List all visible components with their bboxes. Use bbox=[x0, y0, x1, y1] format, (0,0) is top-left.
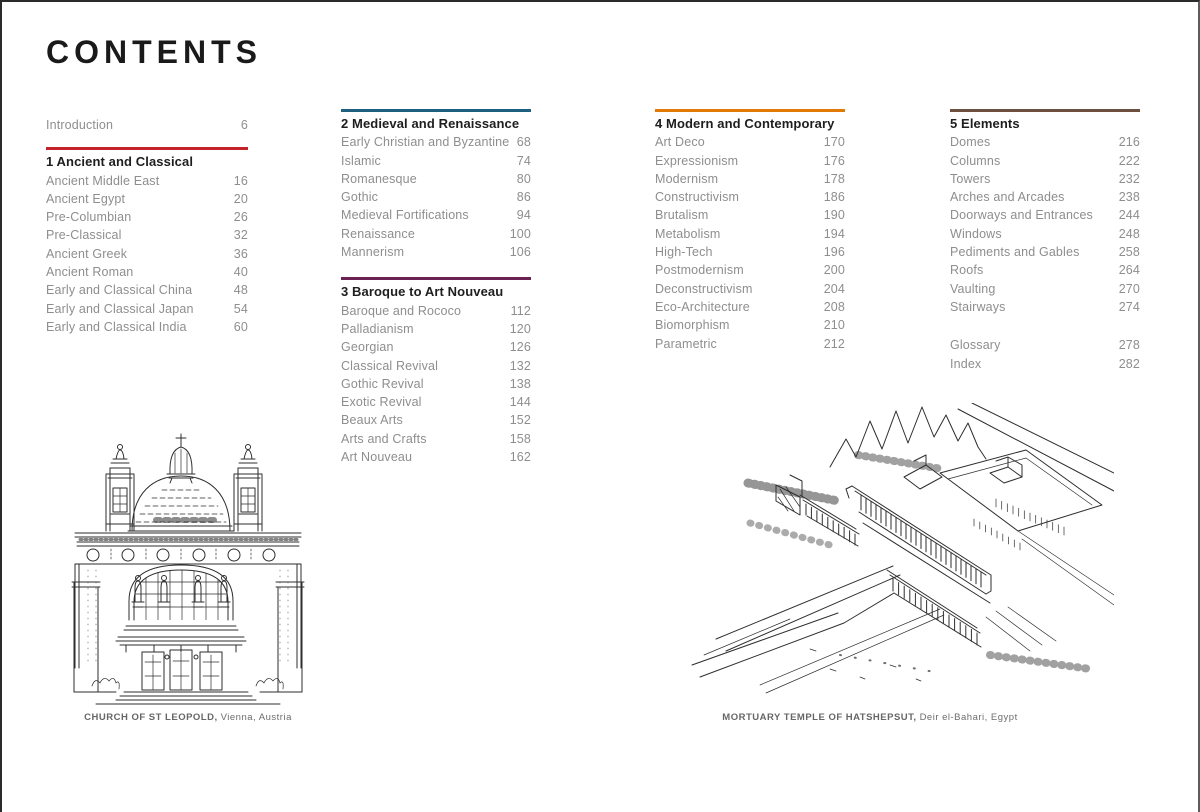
toc-entry-label: Modernism bbox=[655, 170, 718, 188]
toc-section: 4 Modern and ContemporaryArt Deco170Expr… bbox=[655, 109, 845, 353]
toc-column-3: 4 Modern and ContemporaryArt Deco170Expr… bbox=[655, 109, 845, 353]
toc-entry-label: Medieval Fortifications bbox=[341, 206, 469, 224]
toc-entry-page-number: 112 bbox=[511, 302, 531, 320]
toc-entry: Ancient Roman40 bbox=[46, 263, 248, 281]
toc-entry: Arches and Arcades238 bbox=[950, 188, 1140, 206]
toc-entry-label: Glossary bbox=[950, 336, 1001, 354]
temple-caption-location: Deir el-Bahari, Egypt bbox=[920, 712, 1018, 723]
toc-section: 2 Medieval and RenaissanceEarly Christia… bbox=[341, 109, 531, 261]
toc-entry-page-number: 232 bbox=[1119, 170, 1140, 188]
toc-entry-label: Parametric bbox=[655, 335, 717, 353]
toc-entry-page-number: 144 bbox=[510, 393, 531, 411]
toc-entry-page-number: 158 bbox=[510, 430, 531, 448]
toc-entry-page-number: 186 bbox=[824, 188, 845, 206]
toc-entry: Early and Classical China48 bbox=[46, 281, 248, 299]
toc-entry: Islamic74 bbox=[341, 152, 531, 170]
toc-entry-page-number: 20 bbox=[234, 190, 248, 208]
toc-entry-label: Ancient Roman bbox=[46, 263, 133, 281]
toc-entry: Art Deco170 bbox=[655, 133, 845, 151]
toc-entry: Art Nouveau162 bbox=[341, 448, 531, 466]
toc-entry-page-number: 190 bbox=[824, 206, 845, 224]
toc-entry: Medieval Fortifications94 bbox=[341, 206, 531, 224]
toc-entry: Postmodernism200 bbox=[655, 261, 845, 279]
toc-entry: Parametric212 bbox=[655, 335, 845, 353]
church-caption-location: Vienna, Austria bbox=[221, 712, 292, 723]
toc-entry-label: Ancient Egypt bbox=[46, 190, 125, 208]
toc-entry-page-number: 248 bbox=[1119, 225, 1140, 243]
toc-entry-page-number: 94 bbox=[517, 206, 531, 224]
toc-entry-label: Exotic Revival bbox=[341, 393, 422, 411]
toc-entry-label: Early and Classical China bbox=[46, 281, 192, 299]
toc-entry-page-number: 6 bbox=[241, 116, 248, 134]
toc-entry-page-number: 274 bbox=[1119, 298, 1140, 316]
toc-entry: Ancient Egypt20 bbox=[46, 190, 248, 208]
section-title: 2 Medieval and Renaissance bbox=[341, 115, 531, 133]
church-caption-title: CHURCH OF ST LEOPOLD, bbox=[84, 712, 217, 723]
toc-entry: Early and Classical Japan54 bbox=[46, 300, 248, 318]
toc-entry-label: Stairways bbox=[950, 298, 1006, 316]
toc-entry: Gothic Revival138 bbox=[341, 375, 531, 393]
toc-entry-label: Metabolism bbox=[655, 225, 720, 243]
toc-entry-label: Renaissance bbox=[341, 225, 415, 243]
toc-entry-backmatter: Glossary278 bbox=[950, 336, 1140, 354]
toc-entry: Deconstructivism204 bbox=[655, 280, 845, 298]
section-rule bbox=[341, 109, 531, 112]
toc-entry-page-number: 68 bbox=[517, 133, 531, 151]
toc-entry: Beaux Arts152 bbox=[341, 411, 531, 429]
toc-entry-page-number: 176 bbox=[824, 152, 845, 170]
toc-entry-label: Introduction bbox=[46, 116, 113, 134]
toc-entry: Palladianism120 bbox=[341, 320, 531, 338]
toc-entry-page-number: 270 bbox=[1119, 280, 1140, 298]
toc-entry-label: Classical Revival bbox=[341, 357, 438, 375]
toc-entry: Stairways274 bbox=[950, 298, 1140, 316]
toc-entry: Eco-Architecture208 bbox=[655, 298, 845, 316]
toc-entry-label: Domes bbox=[950, 133, 990, 151]
toc-entry-label: Pediments and Gables bbox=[950, 243, 1079, 261]
toc-entry-label: Baroque and Rococo bbox=[341, 302, 461, 320]
toc-entry-page-number: 16 bbox=[234, 172, 248, 190]
toc-entry-label: Postmodernism bbox=[655, 261, 744, 279]
section-rule bbox=[46, 147, 248, 150]
church-caption: CHURCH OF ST LEOPOLD,Vienna, Austria bbox=[18, 712, 358, 723]
toc-entry: Domes216 bbox=[950, 133, 1140, 151]
toc-entry-label: Eco-Architecture bbox=[655, 298, 750, 316]
toc-entry: Renaissance100 bbox=[341, 225, 531, 243]
toc-section: 1 Ancient and ClassicalAncient Middle Ea… bbox=[46, 147, 248, 336]
toc-entry-page-number: 222 bbox=[1119, 152, 1140, 170]
toc-entry-page-number: 282 bbox=[1119, 355, 1140, 373]
toc-entry-page-number: 238 bbox=[1119, 188, 1140, 206]
toc-entry-label: Brutalism bbox=[655, 206, 708, 224]
toc-entry: Pediments and Gables258 bbox=[950, 243, 1140, 261]
toc-entry-label: Deconstructivism bbox=[655, 280, 753, 298]
toc-entry-label: Expressionism bbox=[655, 152, 738, 170]
toc-entry-page-number: 258 bbox=[1119, 243, 1140, 261]
toc-entry-label: High-Tech bbox=[655, 243, 713, 261]
toc-entry: Baroque and Rococo112 bbox=[341, 302, 531, 320]
toc-entry-label: Index bbox=[950, 355, 981, 373]
toc-entry-label: Georgian bbox=[341, 338, 394, 356]
toc-entry: Classical Revival132 bbox=[341, 357, 531, 375]
toc-entry: Roofs264 bbox=[950, 261, 1140, 279]
toc-entry-label: Gothic Revival bbox=[341, 375, 424, 393]
toc-entry-label: Biomorphism bbox=[655, 316, 730, 334]
toc-entry-page-number: 100 bbox=[510, 225, 531, 243]
toc-entry-page-number: 212 bbox=[824, 335, 845, 353]
toc-entry: Ancient Greek36 bbox=[46, 245, 248, 263]
toc-entry-introduction: Introduction6 bbox=[46, 116, 248, 134]
section-title: 1 Ancient and Classical bbox=[46, 153, 248, 171]
toc-entry-label: Early and Classical Japan bbox=[46, 300, 194, 318]
toc-entry-page-number: 208 bbox=[824, 298, 845, 316]
toc-entry: Ancient Middle East16 bbox=[46, 172, 248, 190]
toc-entry-label: Art Deco bbox=[655, 133, 705, 151]
toc-entry-label: Constructivism bbox=[655, 188, 739, 206]
toc-entry-page-number: 204 bbox=[824, 280, 845, 298]
toc-entry: Expressionism176 bbox=[655, 152, 845, 170]
toc-entry-label: Doorways and Entrances bbox=[950, 206, 1093, 224]
toc-entry-page-number: 138 bbox=[510, 375, 531, 393]
toc-backmatter: Glossary278Index282 bbox=[950, 336, 1140, 373]
section-title: 3 Baroque to Art Nouveau bbox=[341, 283, 531, 301]
toc-entry-label: Ancient Middle East bbox=[46, 172, 159, 190]
toc-entry: Metabolism194 bbox=[655, 225, 845, 243]
section-rule bbox=[655, 109, 845, 112]
toc-entry-label: Beaux Arts bbox=[341, 411, 403, 429]
toc-entry-label: Ancient Greek bbox=[46, 245, 127, 263]
section-title: 5 Elements bbox=[950, 115, 1140, 133]
toc-entry-label: Palladianism bbox=[341, 320, 414, 338]
toc-entry: Columns222 bbox=[950, 152, 1140, 170]
toc-entry-page-number: 264 bbox=[1119, 261, 1140, 279]
toc-entry: Modernism178 bbox=[655, 170, 845, 188]
toc-column-1: Introduction61 Ancient and ClassicalAnci… bbox=[46, 116, 248, 336]
toc-entry-page-number: 48 bbox=[234, 281, 248, 299]
church-of-st-leopold-illustration bbox=[66, 430, 310, 706]
toc-entry-label: Pre-Columbian bbox=[46, 208, 131, 226]
toc-entry-page-number: 126 bbox=[510, 338, 531, 356]
toc-entry-page-number: 210 bbox=[824, 316, 845, 334]
toc-entry-page-number: 170 bbox=[824, 133, 845, 151]
toc-entry-page-number: 54 bbox=[234, 300, 248, 318]
toc-column-2: 2 Medieval and RenaissanceEarly Christia… bbox=[341, 109, 531, 466]
toc-entry: Georgian126 bbox=[341, 338, 531, 356]
toc-entry: Vaulting270 bbox=[950, 280, 1140, 298]
toc-entry-page-number: 86 bbox=[517, 188, 531, 206]
toc-entry-label: Towers bbox=[950, 170, 991, 188]
toc-entry: Brutalism190 bbox=[655, 206, 845, 224]
toc-entry-label: Early Christian and Byzantine bbox=[341, 133, 509, 151]
toc-entry: Arts and Crafts158 bbox=[341, 430, 531, 448]
toc-entry: Gothic86 bbox=[341, 188, 531, 206]
toc-entry-label: Gothic bbox=[341, 188, 378, 206]
toc-entry-page-number: 80 bbox=[517, 170, 531, 188]
toc-entry-label: Art Nouveau bbox=[341, 448, 412, 466]
toc-entry: Mannerism106 bbox=[341, 243, 531, 261]
toc-entry-label: Arches and Arcades bbox=[950, 188, 1065, 206]
section-rule bbox=[341, 277, 531, 280]
toc-entry-page-number: 162 bbox=[510, 448, 531, 466]
toc-entry-page-number: 278 bbox=[1119, 336, 1140, 354]
toc-entry-page-number: 60 bbox=[234, 318, 248, 336]
temple-caption-title: MORTUARY TEMPLE OF HATSHEPSUT, bbox=[722, 712, 916, 723]
toc-entry-label: Islamic bbox=[341, 152, 381, 170]
toc-entry-label: Early and Classical India bbox=[46, 318, 187, 336]
toc-entry-page-number: 106 bbox=[510, 243, 531, 261]
toc-entry: Biomorphism210 bbox=[655, 316, 845, 334]
page-title: CONTENTS bbox=[46, 34, 262, 71]
toc-entry-page-number: 120 bbox=[510, 320, 531, 338]
contents-page: CONTENTS Introduction61 Ancient and Clas… bbox=[0, 0, 1200, 812]
toc-entry-page-number: 194 bbox=[824, 225, 845, 243]
toc-entry-page-number: 196 bbox=[824, 243, 845, 261]
toc-entry: Early Christian and Byzantine68 bbox=[341, 133, 531, 151]
toc-entry: Constructivism186 bbox=[655, 188, 845, 206]
toc-entry: Towers232 bbox=[950, 170, 1140, 188]
toc-entry: Early and Classical India60 bbox=[46, 318, 248, 336]
toc-column-4: 5 ElementsDomes216Columns222Towers232Arc… bbox=[950, 109, 1140, 373]
toc-entry: Windows248 bbox=[950, 225, 1140, 243]
toc-entry: Doorways and Entrances244 bbox=[950, 206, 1140, 224]
toc-entry-page-number: 244 bbox=[1119, 206, 1140, 224]
toc-entry-page-number: 26 bbox=[234, 208, 248, 226]
toc-entry: High-Tech196 bbox=[655, 243, 845, 261]
toc-entry-page-number: 74 bbox=[517, 152, 531, 170]
mortuary-temple-of-hatshepsut-illustration bbox=[690, 403, 1114, 701]
toc-entry-backmatter: Index282 bbox=[950, 355, 1140, 373]
toc-entry-page-number: 132 bbox=[510, 357, 531, 375]
toc-entry: Exotic Revival144 bbox=[341, 393, 531, 411]
toc-entry-label: Windows bbox=[950, 225, 1002, 243]
toc-entry-page-number: 216 bbox=[1119, 133, 1140, 151]
toc-entry-page-number: 32 bbox=[234, 226, 248, 244]
toc-entry-page-number: 178 bbox=[824, 170, 845, 188]
toc-entry-label: Roofs bbox=[950, 261, 983, 279]
toc-entry-page-number: 40 bbox=[234, 263, 248, 281]
toc-section: 5 ElementsDomes216Columns222Towers232Arc… bbox=[950, 109, 1140, 316]
toc-entry-label: Romanesque bbox=[341, 170, 417, 188]
toc-entry-page-number: 152 bbox=[510, 411, 531, 429]
toc-entry-page-number: 36 bbox=[234, 245, 248, 263]
toc-entry-page-number: 200 bbox=[824, 261, 845, 279]
temple-caption: MORTUARY TEMPLE OF HATSHEPSUT,Deir el-Ba… bbox=[700, 712, 1040, 723]
toc-entry-label: Arts and Crafts bbox=[341, 430, 427, 448]
toc-entry-label: Columns bbox=[950, 152, 1000, 170]
section-title: 4 Modern and Contemporary bbox=[655, 115, 845, 133]
toc-entry-label: Mannerism bbox=[341, 243, 404, 261]
section-rule bbox=[950, 109, 1140, 112]
toc-section: 3 Baroque to Art NouveauBaroque and Roco… bbox=[341, 277, 531, 466]
toc-entry-label: Pre-Classical bbox=[46, 226, 122, 244]
toc-entry: Romanesque80 bbox=[341, 170, 531, 188]
toc-entry-label: Vaulting bbox=[950, 280, 995, 298]
toc-entry: Pre-Classical32 bbox=[46, 226, 248, 244]
toc-entry: Pre-Columbian26 bbox=[46, 208, 248, 226]
